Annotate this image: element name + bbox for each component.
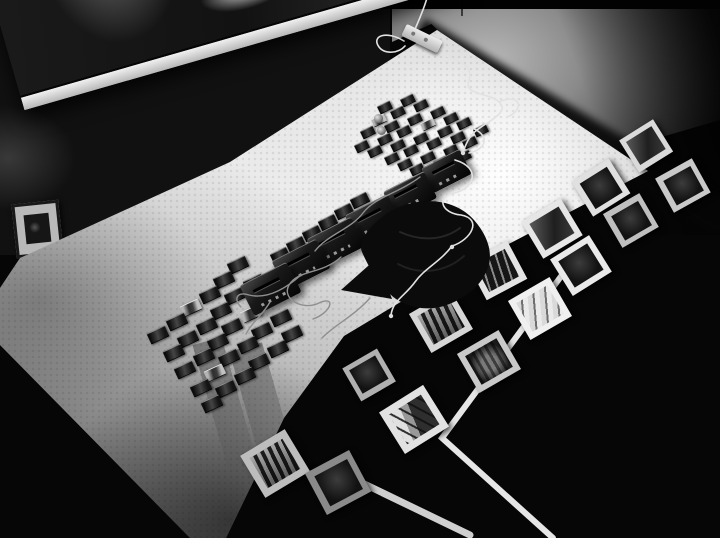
earbud xyxy=(450,245,454,249)
white-earphone-cable xyxy=(377,35,405,52)
gray-cable xyxy=(246,302,270,334)
white-earphone-cable xyxy=(469,127,484,153)
cables-and-cloth-layer xyxy=(0,0,720,538)
power-strip-socket xyxy=(411,31,416,36)
gray-cable xyxy=(237,275,301,307)
white-earphone-cable xyxy=(433,50,502,152)
gray-cable xyxy=(287,257,341,319)
power-strip-socket xyxy=(423,37,428,42)
earbud xyxy=(461,151,465,155)
earbud xyxy=(389,314,393,318)
installation-photograph xyxy=(0,0,720,538)
